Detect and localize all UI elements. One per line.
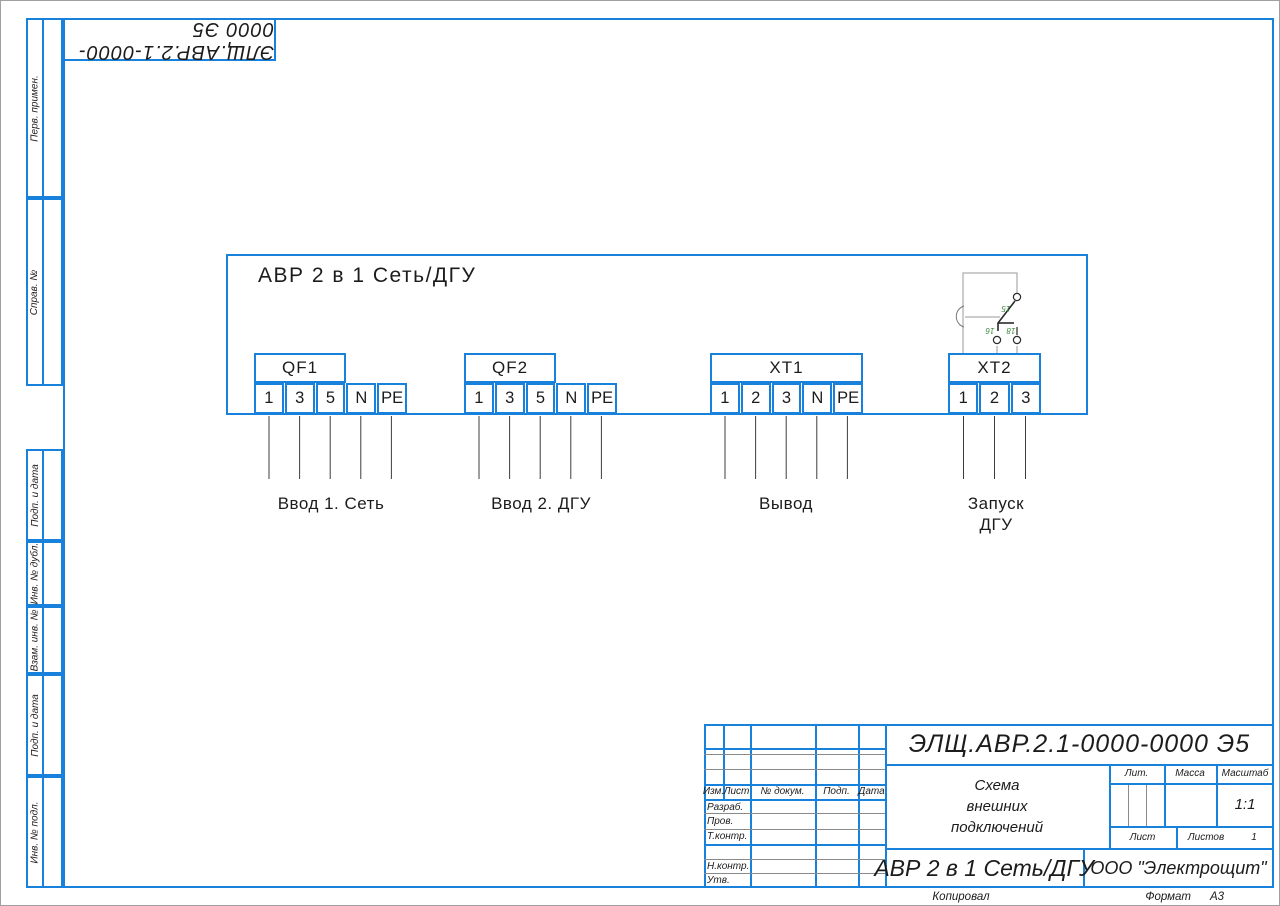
margin-label-wrap: Справ. № [28,200,42,384]
grid-line [704,748,885,750]
terminal-block-xt2: XT2 1 2 3 [948,353,1041,414]
margin-label-wrap: Инв. № подл. [28,778,42,886]
terminal: PE [833,383,863,414]
lit-label: Лит. [1109,764,1164,783]
divider [42,676,44,774]
margin-box-podp-data-2: Подп. и дата [26,674,63,776]
divider [42,778,44,886]
scale-value: 1:1 [1216,783,1274,826]
terminal: 1 [464,383,494,414]
margin-label: Подп. и дата [30,694,41,757]
grid-line [704,829,885,830]
margin-box-vzam-inv: Взам. инв. № [26,606,63,674]
caption-vyvod: Вывод [716,493,856,514]
role-nkontr: Н.контр. [707,861,749,872]
terminal: 1 [254,383,284,414]
terminal: 5 [526,383,556,414]
doc-name: Схема внешних подключений [885,764,1109,848]
grid-line [704,799,885,801]
terminal: 5 [316,383,346,414]
company-name: ООО "Электрощит" [1083,848,1274,888]
divider [42,451,44,539]
scale-label: Масштаб [1216,764,1274,783]
sheet-label: Лист [1109,826,1176,848]
terminal: 3 [772,383,802,414]
role-prov: Пров. [707,816,733,827]
terminal: N [556,383,586,414]
margin-label: Взам. инв. № [30,609,41,671]
terminal: PE [587,383,617,414]
margin-box-perv-primen: Перв. примен. [26,18,63,198]
terminal-block-qf2: QF2 1 3 5 N PE [464,353,617,414]
contact-terminal-nc [993,336,1000,343]
terminal: 2 [741,383,771,414]
mass-label: Масса [1164,764,1216,783]
divider [42,20,44,196]
grid-line [704,769,885,770]
margin-box-sprav-n: Справ. № [26,198,63,386]
grid-line [1128,785,1129,826]
doc-number: ЭЛЩ.АВР.2.1-0000-0000 Э5 [885,724,1274,764]
relay-terminal-label-18: 18 [1006,326,1015,335]
terminal: 1 [710,383,740,414]
role-razrab: Разраб. [707,802,743,813]
drawing-sheet: Перв. примен. Справ. № Подп. и дата Инв.… [0,0,1280,906]
sheets-label: Листов [1176,826,1236,848]
relay-terminal-label-16: 16 [985,326,994,335]
block-name: XT1 [710,353,863,383]
margin-label-wrap: Перв. примен. [28,20,42,196]
caption-vvod1: Ввод 1. Сеть [261,493,401,514]
contact-terminal-no [1013,336,1020,343]
terminal: 2 [979,383,1009,414]
terminal: PE [377,383,407,414]
block-name: QF2 [464,353,556,383]
divider [42,608,44,672]
rotated-doc-number-stamp: ЭЛЩ.АВР.2.1-0000-0000 Э5 [63,18,276,61]
caption-vvod2: Ввод 2. ДГУ [471,493,611,514]
sheets-value: 1 [1241,826,1267,848]
col-list: Лист [723,784,750,799]
margin-label: Справ. № [30,269,41,314]
relay-changeover-contact: 15 16 18 [956,273,1020,353]
margin-box-inv-dubl: Инв. № дубл. [26,541,63,606]
margin-box-inv-podl: Инв. № подл. [26,776,63,888]
margin-label: Перв. примен. [30,75,41,141]
terminal-row: 1 3 5 N PE [464,383,617,414]
grid-line [704,844,885,846]
terminal: N [802,383,832,414]
copied-label: Копировал [901,891,1021,903]
divider [42,543,44,604]
terminal: 3 [285,383,315,414]
role-tkontr: Т.контр. [707,831,747,842]
col-podp: Подп. [815,784,858,799]
format-value: А3 [1197,891,1237,903]
margin-label: Инв. № подл. [30,801,41,863]
terminal: 3 [1011,383,1041,414]
divider [42,200,44,384]
terminal-row: 1 3 5 N PE [254,383,407,414]
rotated-doc-number: ЭЛЩ.АВР.2.1-0000-0000 Э5 [65,17,274,63]
terminal-wires [269,416,1026,479]
grid-line [704,754,885,755]
block-name: QF1 [254,353,346,383]
terminal-block-qf1: QF1 1 3 5 N PE [254,353,407,414]
terminal: N [346,383,376,414]
terminal-row: 1 2 3 [948,383,1041,414]
col-izm: Изм. [704,784,723,799]
grid-line [704,873,885,874]
margin-label-wrap: Подп. и дата [28,676,42,774]
grid-line [704,859,885,860]
margin-label-wrap: Подп. и дата [28,451,42,539]
role-utv: Утв. [707,875,730,886]
grid-line [704,813,885,814]
margin-box-podp-data-1: Подп. и дата [26,449,63,541]
block-name: XT2 [948,353,1041,383]
terminal-block-xt1: XT1 1 2 3 N PE [710,353,863,414]
terminal-row: 1 2 3 N PE [710,383,863,414]
col-ndokum: № докум. [750,784,815,799]
caption-zapusk-dgu: Запуск ДГУ [926,493,1066,535]
product-name: АВР 2 в 1 Сеть/ДГУ [885,848,1083,888]
format-label: Формат [1126,891,1191,903]
grid-line [1146,785,1147,826]
margin-label-wrap: Взам. инв. № [28,608,42,672]
margin-label: Инв. № дубл. [30,543,41,605]
terminal: 3 [495,383,525,414]
relay-terminal-label-15: 15 [1001,304,1010,313]
contact-terminal-common [1013,293,1020,300]
terminal: 1 [948,383,978,414]
margin-label-wrap: Инв. № дубл. [28,543,42,604]
margin-label: Подп. и дата [30,464,41,527]
col-data: Дата [858,784,885,799]
